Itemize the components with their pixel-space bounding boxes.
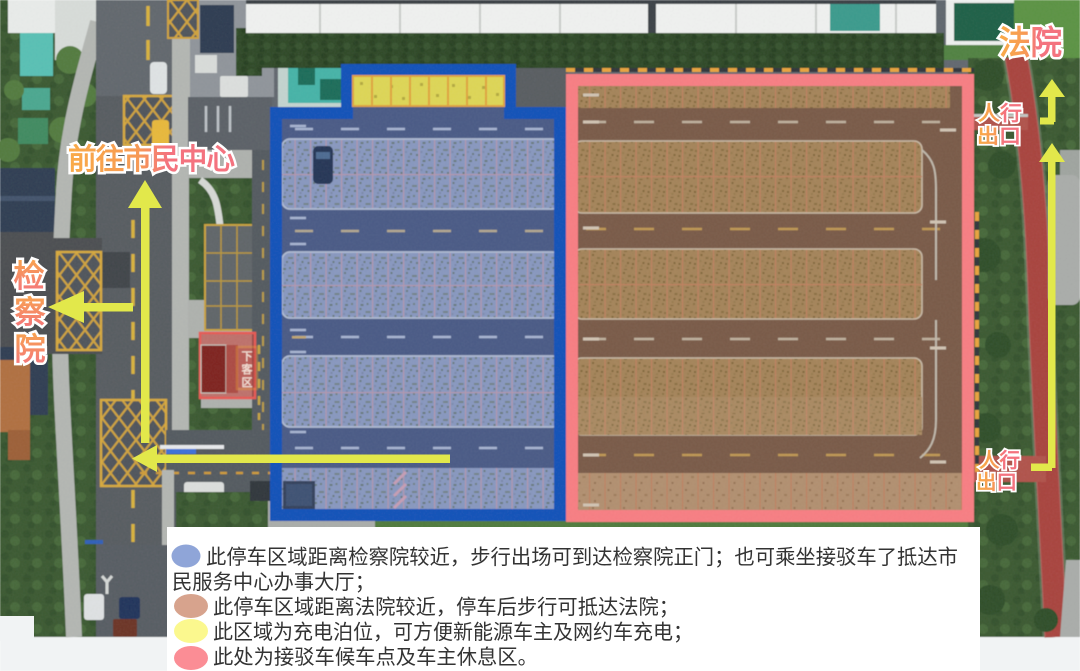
svg-text:检: 检 xyxy=(14,259,45,294)
svg-text:民服务中心办事大厅；: 民服务中心办事大厅； xyxy=(172,571,375,594)
svg-text:出口: 出口 xyxy=(976,471,1017,494)
svg-text:此停车区域距离检察院较近，步行出场可到达检察院正门；也可乘坐: 此停车区域距离检察院较近，步行出场可到达检察院正门；也可乘坐接驳车了抵达市 xyxy=(206,546,958,569)
svg-text:前往市民中心: 前往市民中心 xyxy=(68,142,235,176)
svg-text:此停车区域距离法院较近，停车后步行可抵达法院；: 此停车区域距离法院较近，停车后步行可抵达法院； xyxy=(213,596,679,619)
svg-text:此区域为充电泊位，可方便新能源车主及网约车充电；: 此区域为充电泊位，可方便新能源车主及网约车充电； xyxy=(213,621,693,644)
svg-text:此处为接驳车候车点及车主休息区。: 此处为接驳车候车点及车主休息区。 xyxy=(213,646,538,669)
svg-text:出口: 出口 xyxy=(977,125,1021,148)
svg-text:法院: 法院 xyxy=(999,24,1062,61)
svg-text:院: 院 xyxy=(15,332,46,367)
svg-text:察: 察 xyxy=(15,295,47,330)
svg-text:人行: 人行 xyxy=(978,101,1022,125)
svg-text:人行: 人行 xyxy=(979,448,1020,472)
